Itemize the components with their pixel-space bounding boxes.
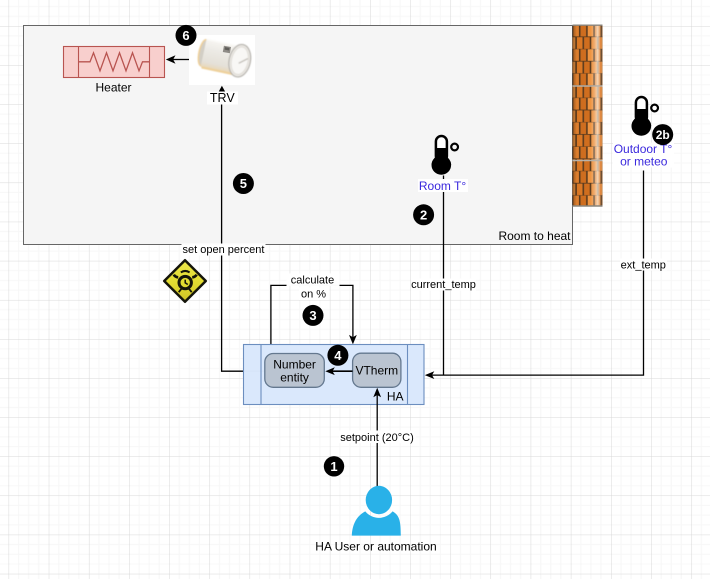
svg-text:calculate: calculate	[291, 274, 334, 286]
svg-text:TRV: TRV	[210, 91, 235, 105]
svg-text:current_temp: current_temp	[411, 279, 476, 291]
svg-text:VTherm: VTherm	[355, 363, 398, 377]
svg-text:HA User or automation: HA User or automation	[315, 539, 436, 553]
svg-text:Number: Number	[273, 358, 316, 372]
svg-text:set open percent: set open percent	[183, 244, 265, 256]
svg-text:6: 6	[182, 28, 189, 43]
svg-text:4: 4	[334, 348, 342, 363]
svg-text:HA: HA	[387, 390, 404, 404]
svg-text:3: 3	[309, 308, 316, 323]
svg-text:Room T°: Room T°	[419, 179, 466, 193]
svg-text:ext_temp: ext_temp	[621, 259, 666, 271]
svg-text:2b: 2b	[656, 128, 670, 142]
svg-text:or meteo: or meteo	[620, 154, 668, 168]
svg-text:5: 5	[240, 176, 247, 191]
svg-text:on %: on %	[301, 288, 326, 300]
svg-text:1: 1	[330, 459, 337, 474]
svg-text:Room to heat: Room to heat	[498, 229, 571, 243]
svg-text:setpoint (20°C): setpoint (20°C)	[340, 432, 414, 444]
svg-text:2: 2	[420, 207, 427, 222]
svg-text:entity: entity	[280, 371, 309, 385]
svg-text:Heater: Heater	[95, 81, 131, 95]
